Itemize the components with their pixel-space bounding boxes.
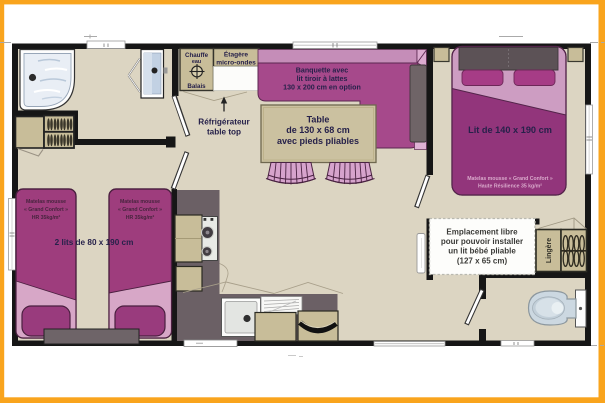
svg-text:HR 35kg/m²: HR 35kg/m²: [32, 215, 61, 221]
svg-text:« Grand Confort »: « Grand Confort »: [118, 207, 162, 213]
svg-text:lit tiroir à lattes: lit tiroir à lattes: [297, 75, 348, 83]
svg-text:Haute Résilience 35 kg/m²: Haute Résilience 35 kg/m²: [478, 184, 542, 190]
svg-text:(127 x 65 cm): (127 x 65 cm): [457, 257, 508, 266]
svg-text:de 130 x 68 cm: de 130 x 68 cm: [286, 125, 350, 135]
svg-text:Étagère: Étagère: [224, 50, 249, 59]
svg-text:Lit de 140 x 190 cm: Lit de 140 x 190 cm: [468, 125, 552, 135]
svg-text:avec pieds pliables: avec pieds pliables: [277, 136, 359, 146]
svg-text:Matelas mousse: Matelas mousse: [26, 199, 66, 205]
svg-text:HR 35kg/m²: HR 35kg/m²: [126, 215, 155, 221]
svg-text:Matelas mousse « Grand Confort: Matelas mousse « Grand Confort »: [467, 176, 553, 182]
svg-text:Réfrigérateur: Réfrigérateur: [198, 118, 250, 127]
svg-text:Banquette avec: Banquette avec: [296, 67, 348, 75]
svg-text:« Grand Confort »: « Grand Confort »: [24, 207, 68, 213]
svg-text:Lingère: Lingère: [546, 238, 553, 263]
svg-text:2 lits de 80 x 190 cm: 2 lits de 80 x 190 cm: [55, 238, 134, 247]
svg-text:Balais: Balais: [187, 83, 206, 90]
svg-text:un lit bébé pliable: un lit bébé pliable: [448, 247, 516, 256]
svg-text:130 x 200 cm en option: 130 x 200 cm en option: [283, 84, 361, 92]
svg-text:Emplacement libre: Emplacement libre: [446, 228, 518, 237]
svg-text:pour pouvoir installer: pour pouvoir installer: [441, 237, 523, 246]
svg-text:Chauffe: Chauffe: [185, 52, 209, 59]
svg-text:Matelas mousse: Matelas mousse: [120, 199, 160, 205]
svg-text:table top: table top: [207, 128, 241, 137]
svg-text:Table: Table: [307, 115, 330, 125]
svg-text:micro-ondes: micro-ondes: [216, 60, 256, 67]
